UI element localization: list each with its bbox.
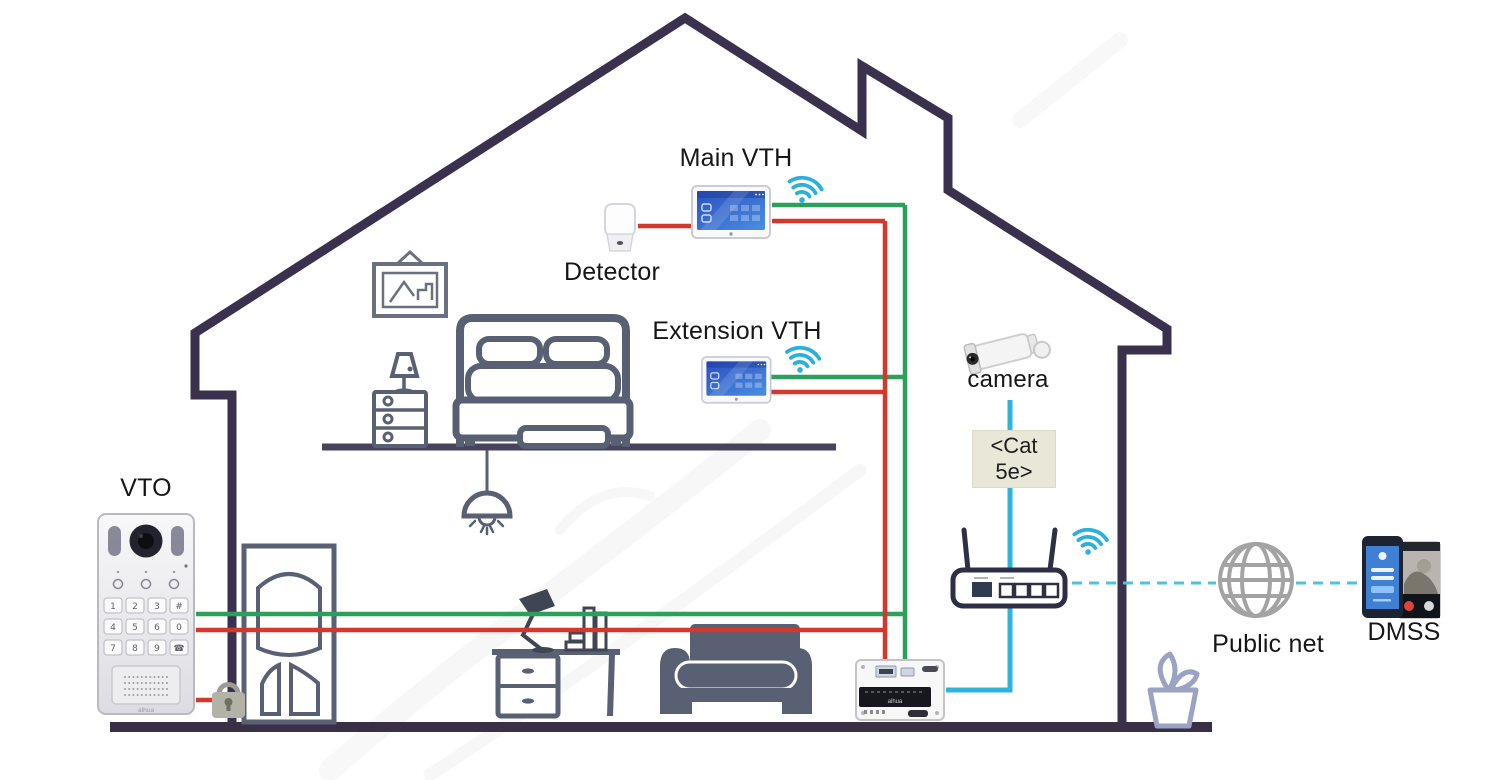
vto-key: 4 [110, 623, 116, 633]
camera-label: camera [952, 366, 1064, 394]
dmss-label: DMSS [1356, 618, 1452, 647]
vto-key: 2 [132, 602, 138, 612]
diagram-art: 1 2 3 # 4 5 6 0 7 8 9 ☎ alhua [0, 0, 1500, 780]
cat5e-line2: 5e> [995, 459, 1032, 485]
cat5e-line1: <Cat [990, 433, 1037, 459]
detector-device [605, 204, 635, 251]
vto-label: VTO [96, 474, 196, 503]
vto-key: 7 [110, 644, 116, 654]
pendant-light [464, 450, 510, 534]
vto-key: 0 [176, 623, 182, 633]
extension-vth-label: Extension VTH [648, 317, 826, 346]
wire-blue-router-switch [946, 604, 1010, 690]
cat5e-label-box: <Cat 5e> [972, 430, 1056, 488]
vto-key: 9 [154, 644, 160, 654]
main-vth-label: Main VTH [662, 144, 810, 173]
wire-red [196, 221, 885, 700]
vto-key: # [175, 602, 183, 612]
nightstand [374, 392, 426, 446]
extension-vth-wifi-icon [783, 345, 820, 376]
switch-device: alhua [856, 660, 944, 720]
main-vth-wifi-icon [785, 174, 823, 206]
vto-key: 8 [132, 644, 138, 654]
vto-key: 3 [154, 602, 160, 612]
extension-vth-device [702, 357, 771, 403]
public-net-label: Public net [1200, 630, 1336, 659]
main-vth-device [692, 186, 770, 238]
plant [1150, 654, 1197, 726]
vto-key: ☎ [173, 644, 184, 654]
public-net-globe-icon [1220, 544, 1292, 616]
table-lamp [392, 354, 417, 394]
vto-brand-logo: alhua [138, 707, 154, 714]
door [244, 546, 334, 722]
vto-key: 5 [132, 623, 138, 633]
vto-key: 1 [110, 602, 116, 612]
vto-device: 1 2 3 # 4 5 6 0 7 8 9 ☎ alhua [98, 514, 194, 714]
couch [660, 624, 812, 714]
router-wifi-icon [1071, 527, 1108, 557]
picture-frame [374, 252, 446, 316]
diagram-canvas: 1 2 3 # 4 5 6 0 7 8 9 ☎ alhua [0, 0, 1500, 780]
bed [456, 318, 630, 447]
vto-key: 6 [154, 623, 160, 633]
dmss-phones-icon [1362, 536, 1440, 618]
switch-brand-logo: alhua [888, 699, 903, 705]
detector-label: Detector [548, 258, 676, 287]
